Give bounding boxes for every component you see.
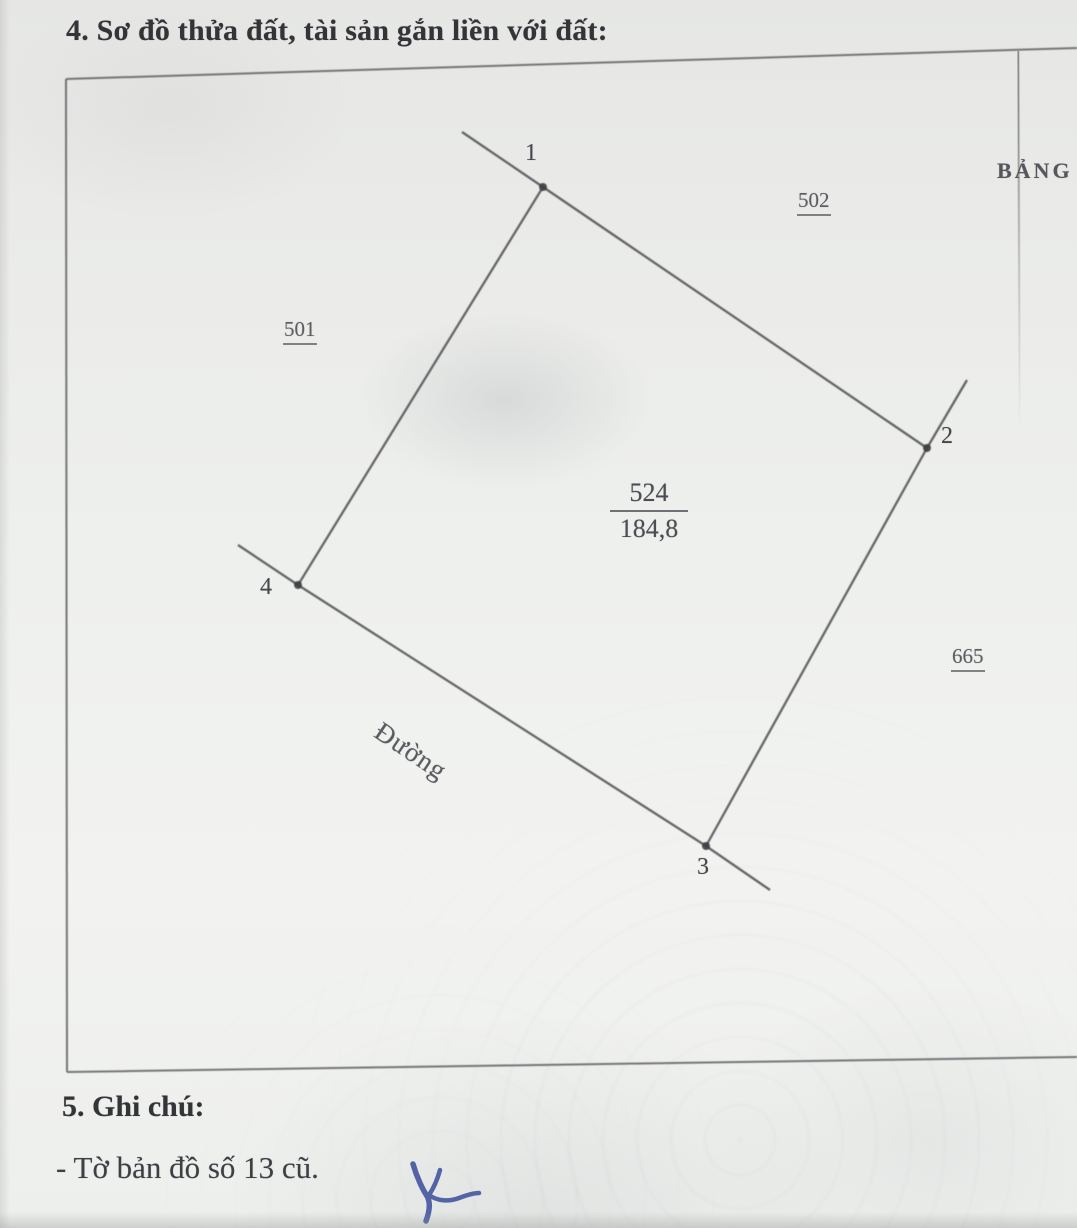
vertex-label-3: 3 [697,854,709,881]
corner-text-bang: BẢNG [997,158,1073,184]
parcel-number-area: 524 184,8 [610,478,688,544]
neighbor-parcel-665: 665 [951,644,985,672]
parcel-diagram-linework [0,0,1077,1228]
vertex-label-1: 1 [525,140,537,167]
parcel-number: 524 [610,478,688,512]
parcel-boundary [238,132,967,890]
neighbor-parcel-502: 502 [797,188,831,216]
diagram-frame [66,48,1077,1072]
vertex-label-4: 4 [260,574,272,601]
parcel-area: 184,8 [610,512,688,544]
note-map-sheet: - Tờ bản đồ số 13 cũ. [56,1150,319,1186]
diagram-frame-right-faded [1018,51,1020,430]
vertex-label-2: 2 [941,423,953,450]
pen-signature-mark [413,1164,479,1221]
section5-heading: 5. Ghi chú: [62,1090,205,1124]
scanned-land-certificate-page: 4. Sơ đồ thửa đất, tài sản gắn liền với … [0,0,1077,1228]
neighbor-parcel-501: 501 [283,317,317,345]
